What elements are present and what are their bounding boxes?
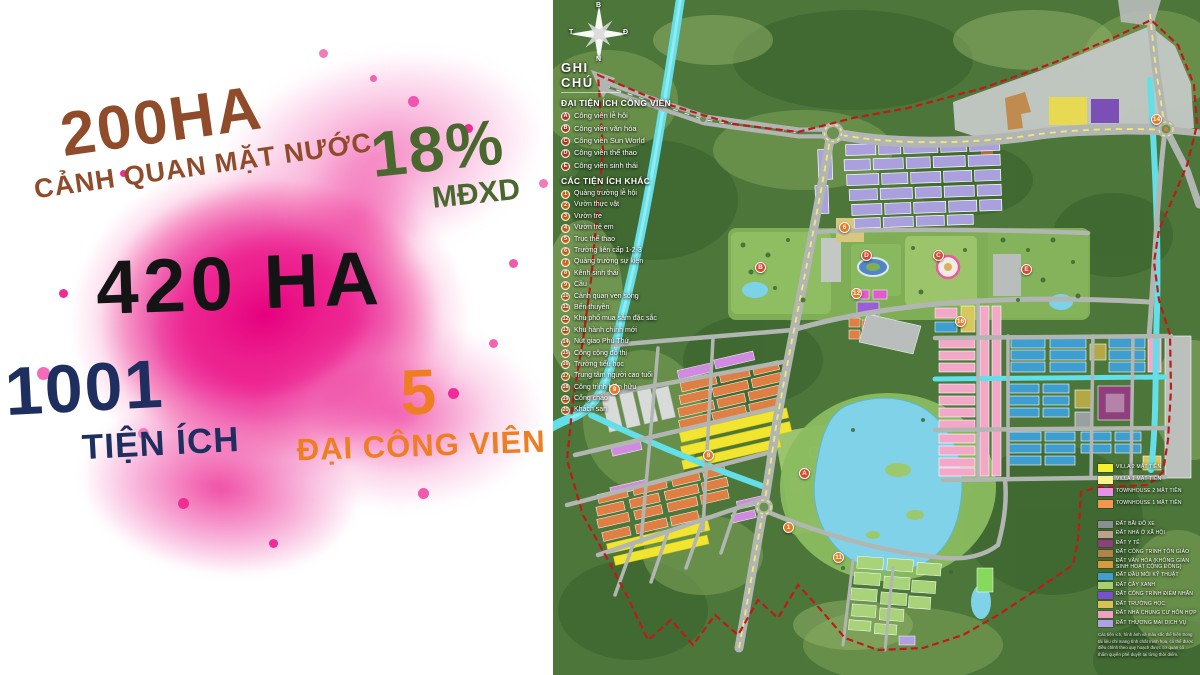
landuse-label: Đất đầu mối kỹ thuật [1116,573,1179,579]
color-swatch [1098,488,1113,496]
map-marker: 1 [783,522,794,533]
landuse-row: Đất bãi đỗ xe [1098,521,1198,528]
landuse-label: Đất nhà chung cư hỗn hợp [1116,611,1197,617]
legend-item-badge: 14 [561,338,570,347]
landuse-row: Đất công trình điểm nhấn [1098,592,1198,599]
stat-amenities: 1001 TIỆN ÍCH [3,346,240,471]
legend-item-badge: 15 [561,349,570,358]
map-marker: 16 [955,316,966,327]
stat-value: 1001 [3,346,238,426]
legend-item: 14 Nút giao Phú Thứ [561,338,719,347]
legend-item-badge: 6 [561,247,570,256]
map-marker: 12 [851,288,862,299]
legend-item-label: Khách sạn [574,406,607,414]
legend-item: 13 Khu hành chính mới [561,326,719,335]
legend-item: 10 Cảnh quan ven sông [561,292,719,301]
legend-item: 12 Khu phố mua sắm đặc sắc [561,315,719,324]
map-marker: 9 [609,384,620,395]
stat-build-density: 18% MĐXD [357,108,521,221]
legend-item: E Công viên sinh thái [561,162,719,171]
legend-item-label: Nút giao Phú Thứ [574,338,629,346]
legend-section-other-title: CÁC TIỆN ÍCH KHÁC [561,176,719,186]
legend-item-label: Vườn tre [574,213,602,221]
stat-value: 420 HA [95,241,385,327]
landuse-row: Đất công trình tôn giáo [1098,550,1198,557]
landuse-row: Townhouse 2 mặt tiền [1098,488,1198,496]
landuse-label: Đất y tế [1116,541,1140,547]
landuse-row: Đất đầu mối kỹ thuật [1098,573,1198,580]
color-swatch [1098,531,1113,538]
legend-item: 6 Trường liên cấp 1-2-3 [561,247,719,256]
landuse-label: Đất công trình điểm nhấn [1116,592,1193,598]
legend-item: 9 Cầu [561,281,719,290]
landuse-row: Đất y tế [1098,540,1198,547]
legend-item: D Công viên thể thao [561,149,719,158]
landuse-label: Đất cây xanh [1116,583,1155,589]
landuse-land-list: Đất bãi đỗ xe Đất nhà ở xã hội Đất y tế [1098,521,1198,627]
stat-label: TIỆN ÍCH [81,422,240,467]
stat-value: 5 [288,355,550,428]
color-swatch [1098,561,1113,568]
color-swatch [1098,550,1113,557]
landuse-row: Đất nhà chung cư hỗn hợp [1098,611,1198,618]
legend-item-label: Khu phố mua sắm đặc sắc [574,315,657,323]
legend-item-badge: 1 [561,190,570,199]
landuse-label: Đất trường học [1116,602,1165,608]
legend-item-badge: 9 [561,281,570,290]
legend-item-badge: 8 [561,269,570,278]
landuse-housing-list: Villa 2 mặt tiền Villa 1 mặt tiền Townho… [1098,464,1198,508]
legend-item-label: Trung tâm người cao tuổi [574,372,653,380]
compass-north-label: B [596,2,601,9]
legend-item-badge: 16 [561,360,570,369]
landuse-row: Đất cây xanh [1098,582,1198,589]
legend-item-label: Quảng trường sự kiện [574,258,643,266]
color-swatch [1098,582,1113,589]
compass-west-label: T [569,29,573,36]
stats-panel: 200HA CẢNH QUAN MẶT NƯỚC 18% MĐXD 420 HA… [0,0,553,675]
legend-item: 17 Trung tâm người cao tuổi [561,372,719,381]
legend-item-badge: A [561,112,570,121]
landuse-row: Đất trường học [1098,601,1198,608]
legend-item-label: Cầu [574,281,587,289]
legend-item-label: Vườn thực vật [574,201,619,209]
legend-item-label: Công viên thể thao [574,149,637,158]
color-swatch [1098,540,1113,547]
legend-item: 7 Quảng trường sự kiện [561,258,719,267]
map-marker: 6 [839,222,850,233]
landuse-row: Villa 2 mặt tiền [1098,464,1198,472]
map-marker: C [933,250,944,261]
legend-item-badge: D [561,149,570,158]
legend-item-badge: 3 [561,212,570,221]
legend-item: C Công viên Sun World [561,137,719,146]
landuse-label: Đất bãi đỗ xe [1116,522,1155,528]
legend-item: 2 Vườn thực vật [561,201,719,210]
legend-other-list: 1 Quảng trường lễ hội 2 Vườn thực vật 3 … [561,190,719,415]
color-swatch [1098,476,1113,484]
legend-item-label: Trục thể thao [574,236,615,244]
legend-item-badge: 13 [561,326,570,335]
legend-item-badge: 5 [561,235,570,244]
map-marker: 11 [833,552,844,563]
landuse-row: Townhouse 1 mặt tiền [1098,500,1198,508]
legend-item-label: Kênh sinh thái [574,270,618,278]
map-notes-legend: GHI CHÚ ĐẠI TIỆN ÍCH CÔNG VIÊN A Công vi… [561,60,719,417]
legend-item: 20 Khách sạn [561,406,719,415]
legend-item: 16 Trường tiểu học [561,360,719,369]
legend-item: 19 Cổng chào [561,395,719,404]
legend-item-badge: E [561,162,570,171]
legend-item-badge: 4 [561,224,570,233]
legend-item-badge: C [561,137,570,146]
landuse-label: Townhouse 2 mặt tiền [1116,489,1182,495]
legend-item-badge: 2 [561,201,570,210]
landuse-row: Đất thương mại dịch vụ [1098,620,1198,627]
landuse-label: Villa 1 mặt tiền [1116,477,1161,483]
legend-item: 3 Vườn tre [561,212,719,221]
landuse-row: Đất văn hóa (không gian sinh hoạt cộng đ… [1098,559,1198,570]
color-swatch [1098,592,1113,599]
legend-item: 1 Quảng trường lễ hội [561,190,719,199]
legend-item-label: Quảng trường lễ hội [574,190,637,198]
legend-item: 15 Công cộng đô thị [561,349,719,358]
landuse-label: Villa 2 mặt tiền [1116,465,1161,471]
legend-item: 5 Trục thể thao [561,235,719,244]
legend-item-badge: 18 [561,383,570,392]
map-marker: B [755,262,766,273]
legend-item-label: Trường tiểu học [574,361,624,369]
map-marker: 8 [703,450,714,461]
legend-title: GHI CHÚ [561,60,621,93]
map-marker: E [1021,264,1032,275]
color-swatch [1098,521,1113,528]
legend-item-label: Vườn trẻ em [574,224,614,232]
compass-east-label: Đ [623,29,628,36]
color-swatch [1098,500,1113,508]
color-swatch [1098,611,1113,618]
legend-item-label: Công viên Sun World [574,137,645,146]
legend-item-badge: 19 [561,395,570,404]
legend-divider [1098,512,1198,521]
color-swatch [1098,601,1113,608]
landuse-label: Đất thương mại dịch vụ [1116,621,1187,627]
stat-grand-parks: 5 ĐẠI CÔNG VIÊN [288,355,551,467]
map-marker: A [799,468,810,479]
legend-item-label: Bến thuyền [574,304,609,312]
legend-disclaimer: Các tiện ích, hình ảnh và màu sắc thể hi… [1098,632,1194,658]
legend-item: 11 Bến thuyền [561,303,719,312]
infographic-masterplan-slide: 200HA CẢNH QUAN MẶT NƯỚC 18% MĐXD 420 HA… [0,0,1200,675]
landuse-label: Đất công trình tôn giáo [1116,550,1189,556]
legend-item-label: Cảnh quan ven sông [574,293,639,301]
landuse-label: Đất văn hóa (không gian sinh hoạt cộng đ… [1116,559,1198,570]
stat-total-area: 420 HA [95,241,385,327]
legend-item: 4 Vườn trẻ em [561,224,719,233]
legend-item-label: Công trình hiện hữu [574,384,636,392]
color-swatch [1098,620,1113,627]
landuse-label: Đất nhà ở xã hội [1116,531,1165,537]
legend-item: B Công viên văn hóa [561,124,719,133]
legend-parks-list: A Công viên lễ hội B Công viên văn hóa C… [561,112,719,171]
legend-item-label: Trường liên cấp 1-2-3 [574,247,642,255]
legend-item-badge: 17 [561,372,570,381]
legend-item-badge: 20 [561,406,570,415]
color-swatch [1098,464,1113,472]
landuse-label: Townhouse 1 mặt tiền [1116,501,1182,507]
legend-item-badge: 11 [561,303,570,312]
map-marker: D [861,250,872,261]
legend-item-badge: B [561,124,570,133]
map-marker: 14 [1151,114,1162,125]
legend-item-label: Cổng chào [574,395,608,403]
legend-item-label: Công viên sinh thái [574,162,638,171]
legend-section-parks-title: ĐẠI TIỆN ÍCH CÔNG VIÊN [561,98,719,108]
legend-item-label: Công cộng đô thị [574,350,627,358]
compass-rose: B N T Đ [567,2,631,66]
color-swatch [1098,573,1113,580]
legend-item-label: Công viên văn hóa [574,125,637,134]
legend-item: 18 Công trình hiện hữu [561,383,719,392]
legend-item: 8 Kênh sinh thái [561,269,719,278]
legend-item-badge: 10 [561,292,570,301]
landuse-row: Villa 1 mặt tiền [1098,476,1198,484]
legend-item-label: Công viên lễ hội [574,112,628,121]
legend-item-badge: 7 [561,258,570,267]
legend-item: A Công viên lễ hội [561,112,719,121]
landuse-legend: Villa 2 mặt tiền Villa 1 mặt tiền Townho… [1098,464,1198,658]
master-plan-map: B N T Đ GHI CHÚ ĐẠI TIỆN ÍCH CÔNG VIÊN A… [553,0,1200,675]
legend-item-badge: 12 [561,315,570,324]
landuse-row: Đất nhà ở xã hội [1098,531,1198,538]
legend-item-label: Khu hành chính mới [574,327,637,335]
